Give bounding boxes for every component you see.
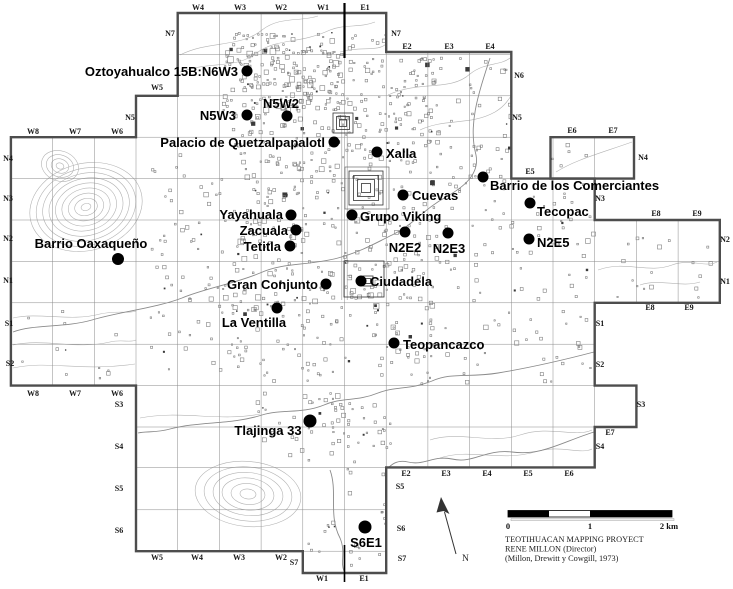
grid-label: S6: [397, 524, 405, 533]
site-marker: [524, 234, 535, 245]
site-marker: [286, 210, 297, 221]
structure-square: [289, 49, 290, 50]
structure-square: [247, 83, 249, 85]
structure-square: [374, 304, 377, 307]
structure-square: [331, 32, 332, 33]
structure-square: [545, 144, 547, 146]
grid-label: E5: [523, 469, 532, 478]
structure-square: [267, 304, 269, 306]
grid-label: W5: [151, 83, 163, 92]
structure-square: [377, 309, 379, 311]
site-marker: [356, 276, 367, 287]
grid-label: S7: [398, 554, 406, 563]
grid-label: W1: [317, 3, 329, 12]
site-marker: [304, 415, 317, 428]
site-label: Xalla: [386, 146, 417, 161]
scale-tick-label: 0: [506, 521, 510, 531]
structure-square: [421, 323, 423, 325]
grid-label: E5: [525, 167, 534, 176]
grid-label: S2: [6, 359, 14, 368]
site-label: Tetitla: [244, 239, 282, 254]
structure-square: [301, 127, 304, 130]
site-label: Barrio de los Comerciantes: [490, 178, 659, 193]
grid-label: N2: [720, 235, 730, 244]
grid-label: W1: [316, 574, 328, 583]
scale-tick-label: 1: [588, 521, 592, 531]
grid-label: E2: [402, 42, 411, 51]
structure-square: [430, 180, 435, 185]
grid-label: N3: [595, 194, 605, 203]
structure-square: [319, 412, 322, 415]
structure-square: [319, 46, 321, 48]
grid-label: E8: [651, 209, 660, 218]
structure-square: [506, 123, 507, 124]
structure-square: [237, 253, 239, 255]
grid-label: E7: [605, 428, 614, 437]
structure-square: [515, 149, 517, 151]
structure-square: [254, 102, 256, 104]
site-label: Tlajinga 33: [234, 423, 301, 438]
grid-label: W8: [27, 389, 39, 398]
site-marker: [321, 279, 332, 290]
grid-label: S1: [596, 319, 604, 328]
structure-square: [366, 325, 368, 327]
site-label: Palacio de Quetzalpapalotl: [160, 135, 325, 150]
structure-square: [328, 526, 329, 527]
site-label: Ciudadela: [370, 274, 433, 289]
credit-line: TEOTIHUACAN MAPPING PROYECT: [505, 535, 644, 544]
scale-bar-segment: [590, 511, 672, 518]
site-label: Grupo Viking: [360, 209, 441, 224]
site-label: Cuevas: [412, 188, 458, 203]
credit-line: (Millon, Drewitt y Cowgill, 1973): [505, 554, 619, 563]
site-marker: [347, 210, 358, 221]
site-marker: [282, 111, 293, 122]
structure-square: [425, 63, 430, 68]
grid-label: W2: [275, 553, 287, 562]
site-marker: [242, 110, 253, 121]
grid-label: N5: [125, 113, 135, 122]
grid-label: N6: [514, 71, 524, 80]
grid-label: S1: [5, 319, 13, 328]
site-label: La Ventilla: [222, 315, 287, 330]
grid-label: E6: [567, 126, 576, 135]
site-marker: [443, 228, 454, 239]
site-marker: [389, 338, 400, 349]
structure-square: [409, 32, 411, 34]
site-marker: [285, 241, 296, 252]
structure-square: [514, 289, 516, 291]
structure-square: [200, 234, 202, 236]
structure-square: [411, 31, 414, 34]
grid-label: N7: [391, 29, 401, 38]
grid-label: E3: [444, 42, 453, 51]
structure-square: [163, 351, 165, 353]
site-label: N5W2: [263, 96, 299, 111]
structure-square: [586, 269, 588, 271]
site-marker: [372, 147, 383, 158]
structure-square: [328, 192, 329, 193]
grid-label: N3: [3, 194, 13, 203]
site-label: Zacuala: [240, 223, 289, 238]
grid-label: W6: [111, 389, 123, 398]
structure-square: [251, 122, 255, 126]
site-marker: [329, 137, 340, 148]
structure-square: [363, 434, 365, 436]
grid-label: W3: [234, 3, 246, 12]
structure-square: [328, 66, 330, 68]
grid-label: S3: [115, 400, 123, 409]
structure-square: [316, 91, 318, 93]
north-arrow-head: [437, 497, 450, 514]
grid-label: W4: [191, 553, 203, 562]
site-marker: [291, 225, 302, 236]
grid-label: E2: [401, 469, 410, 478]
grid-label: N5: [512, 113, 522, 122]
structure-square: [236, 310, 238, 312]
grid-label: W6: [111, 127, 123, 136]
scale-tick-label: 2 km: [660, 521, 678, 531]
grid-label: S4: [596, 442, 604, 451]
scale-bar-shadow: [511, 519, 674, 521]
site-label: Gran Conjunto: [227, 277, 318, 292]
structure-square: [348, 360, 350, 362]
site-label: Oztoyahualco 15B:N6W3: [85, 64, 238, 79]
grid-label: W4: [192, 3, 204, 12]
structure-square: [229, 48, 232, 51]
structure-square: [515, 166, 519, 170]
credit-line: RENE MILLON (Director): [505, 545, 596, 554]
site-marker: [525, 198, 536, 209]
structure-square: [345, 262, 346, 263]
scale-bar-segment: [508, 511, 549, 518]
site-label: Teopancazco: [403, 337, 484, 352]
structure-square: [431, 131, 433, 133]
grid-label: E8: [645, 303, 654, 312]
structure-square: [323, 212, 325, 214]
grid-label: S5: [396, 482, 404, 491]
site-label: N2E3: [433, 241, 466, 256]
grid-label: W3: [233, 553, 245, 562]
grid-label: S6: [115, 526, 123, 535]
structure-square: [164, 288, 166, 290]
grid-label: E1: [359, 574, 368, 583]
site-marker: [242, 66, 253, 77]
grid-label: E3: [441, 469, 450, 478]
site-label: S6E1: [350, 535, 382, 550]
grid-label: N1: [720, 277, 730, 286]
structure-square: [296, 297, 298, 299]
grid-label: S5: [115, 484, 123, 493]
grid-label: S3: [637, 400, 645, 409]
grid-label: W7: [69, 127, 81, 136]
site-marker: [398, 190, 409, 201]
structure-square: [537, 148, 540, 151]
structure-square: [393, 43, 398, 48]
north-arrow-shaft: [445, 512, 457, 554]
grid-label: W2: [275, 3, 287, 12]
grid-label: N4: [3, 154, 13, 163]
grid-label: W5: [151, 553, 163, 562]
structure-square: [465, 67, 469, 71]
grid-label: E7: [608, 126, 617, 135]
north-label: N: [462, 554, 469, 564]
site-marker: [400, 227, 411, 238]
grid-label: N4: [638, 153, 648, 162]
structure-square: [387, 142, 389, 144]
map-canvas: W4W3W2W1E1N7N7E2E3E4N6N5W5N5E6E7W8W7W6N4…: [0, 0, 733, 589]
structure-square: [65, 349, 66, 350]
grid-label: E4: [485, 42, 494, 51]
site-label: N2E5: [537, 235, 570, 250]
grid-label: W7: [69, 389, 81, 398]
grid-label: N7: [165, 29, 175, 38]
grid-label: W8: [27, 127, 39, 136]
grid-label: E9: [692, 209, 701, 218]
teotihuacan-site-map: W4W3W2W1E1N7N7E2E3E4N6N5W5N5E6E7W8W7W6N4…: [0, 0, 733, 589]
structure-square: [262, 407, 263, 408]
site-label: N5W3: [200, 108, 236, 123]
site-marker: [478, 172, 489, 183]
site-label: Tecopac: [537, 204, 589, 219]
annotation-layer: N012 kmTEOTIHUACAN MAPPING PROYECTRENE M…: [437, 497, 679, 564]
site-label: Barrio Oaxaqueño: [35, 236, 148, 251]
grid-label: E4: [482, 469, 491, 478]
grid-label: N2: [3, 234, 13, 243]
structure-square: [355, 117, 358, 120]
grid-label: S4: [115, 442, 123, 451]
structure-square: [561, 222, 563, 224]
grid-label: E9: [684, 303, 693, 312]
site-marker: [112, 253, 124, 265]
grid-label: E6: [564, 469, 573, 478]
grid-label: S2: [596, 360, 604, 369]
grid-label: E1: [360, 3, 369, 12]
site-label: Yayahuala: [219, 207, 283, 222]
site-marker: [359, 521, 372, 534]
grid-label: S7: [290, 558, 298, 567]
site-marker: [272, 303, 283, 314]
structure-square: [395, 126, 398, 129]
grid-label: N1: [3, 276, 13, 285]
site-label: N2E2: [389, 240, 422, 255]
